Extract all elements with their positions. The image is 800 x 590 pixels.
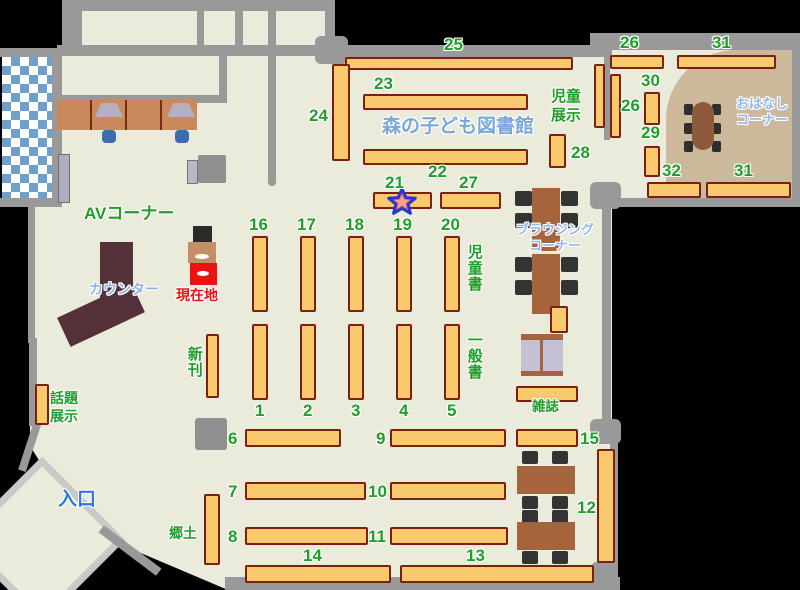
wall (28, 205, 35, 343)
wall (62, 0, 82, 50)
wall (0, 198, 54, 207)
local-history-label: 郷土 (169, 525, 197, 543)
shelf-number-30: 30 (641, 72, 660, 89)
shelf-number-23: 23 (374, 75, 393, 92)
browsing-table (532, 254, 560, 314)
gray-cabinet (198, 155, 226, 183)
chair (515, 280, 532, 295)
av-desk-divider (160, 100, 162, 130)
kiosk-top (193, 226, 212, 242)
shelf-number-32: 32 (662, 162, 681, 179)
back-room (62, 56, 170, 95)
shelf-26-horizontal (610, 55, 664, 69)
shelf-6 (245, 429, 341, 447)
kiosk-base-mark (197, 271, 209, 276)
shelf-27 (440, 192, 501, 209)
shelf-number-27: 27 (459, 174, 478, 191)
shelf-number-4: 4 (399, 402, 408, 419)
back-room (204, 11, 235, 45)
shelf-number-3: 3 (351, 402, 360, 419)
back-room (243, 11, 268, 45)
shelf-number-20: 20 (441, 216, 460, 233)
children-books-label: 児童書 (464, 244, 483, 292)
shelf-24 (332, 64, 350, 161)
shelf-number-24: 24 (309, 107, 328, 124)
shelf-number-22: 22 (428, 163, 447, 180)
shelf-number-29: 29 (641, 124, 660, 141)
back-room (177, 56, 219, 95)
shelf-number-11: 11 (368, 528, 386, 545)
shelf-12 (597, 449, 615, 563)
shelf-7 (245, 482, 366, 500)
shelf-3 (348, 324, 364, 400)
av-desk-divider (90, 100, 92, 130)
shelf-number-6: 6 (228, 430, 237, 447)
chair-blue (175, 130, 189, 143)
shelf-10 (390, 482, 506, 500)
wall (197, 8, 204, 48)
shelf-1 (252, 324, 268, 400)
magazine-rack (521, 334, 563, 376)
reading-table (517, 466, 575, 494)
shelf-23 (363, 94, 528, 110)
shelf-11 (390, 527, 508, 545)
wall (219, 53, 227, 103)
wall (607, 198, 800, 207)
topic-display-label: 話題 展示 (50, 390, 78, 425)
shelf-9 (390, 429, 506, 447)
shelf-19 (396, 236, 412, 312)
shelf-4 (396, 324, 412, 400)
wall (792, 33, 800, 204)
chair (522, 551, 538, 564)
shelf-number-28: 28 (571, 144, 590, 161)
shelf-number-17: 17 (297, 216, 316, 233)
chair (522, 496, 538, 509)
shelf-28 (549, 134, 566, 168)
shelf-13 (400, 565, 594, 583)
shelf-number-1: 1 (255, 402, 264, 419)
kiosk-screen (195, 254, 209, 259)
shelf-number-5: 5 (447, 402, 456, 419)
topic-display-shelf (35, 384, 49, 425)
kiosk-body (188, 242, 216, 263)
shelf-number-13: 13 (466, 547, 485, 564)
children-display-shelf (594, 64, 605, 128)
magazine-rack-divider (540, 340, 543, 371)
chair (552, 496, 568, 509)
shelf-16 (252, 236, 268, 312)
shelf-number-19: 19 (393, 216, 412, 233)
shelf-number-18: 18 (345, 216, 364, 233)
new-books-shelf (206, 334, 219, 398)
av-desk-divider (125, 100, 127, 130)
shelf-number-31b: 31 (734, 162, 753, 179)
shelf-number-26a: 26 (620, 34, 639, 51)
story-corner-table (692, 102, 714, 150)
shelf-30 (644, 92, 660, 125)
chair (561, 280, 578, 295)
new-books-label: 新刊 (184, 346, 203, 378)
reading-table (517, 522, 575, 550)
wall (57, 45, 335, 56)
shelf-number-31a: 31 (712, 34, 731, 51)
shelf-5 (444, 324, 460, 400)
shelf-number-21: 21 (385, 174, 404, 191)
shelf-17 (300, 236, 316, 312)
library-floor-map: 25 23 24 22 21 27 28 26 31 30 26 29 32 3… (0, 0, 800, 590)
chair (515, 257, 532, 272)
gray-panel (187, 160, 198, 184)
counter-label: カウンター (89, 281, 159, 299)
book-cart (58, 154, 70, 203)
shelf-number-10: 10 (368, 483, 387, 500)
shelf-number-16: 16 (249, 216, 268, 233)
shelf-number-2: 2 (303, 402, 312, 419)
shelf-number-25: 25 (444, 36, 463, 53)
local-history-shelf (204, 494, 220, 565)
entrance-label: 入口 (58, 488, 96, 512)
chair (561, 257, 578, 272)
wall (330, 45, 612, 57)
shelf-number-26b: 26 (621, 97, 640, 114)
shelf-number-9: 9 (376, 430, 385, 447)
kiosk-base (190, 263, 217, 285)
shelf-8 (245, 527, 368, 545)
shelf-18 (348, 236, 364, 312)
shelf-15 (516, 429, 578, 447)
shelf-number-14: 14 (303, 547, 322, 564)
shelf-31-bottom (706, 182, 791, 198)
magazines-label: 雑誌 (532, 399, 559, 416)
av-corner-label: AVコーナー (84, 203, 174, 224)
shelf-31-top (677, 55, 776, 69)
chair (561, 191, 578, 206)
pillar (195, 418, 227, 450)
shelf-number-12: 12 (577, 499, 596, 516)
shelf-number-8: 8 (228, 528, 237, 545)
chair (515, 191, 532, 206)
wall (235, 8, 243, 48)
shelf-32 (647, 182, 701, 198)
general-books-label: 一般書 (464, 332, 483, 380)
wall (268, 8, 276, 186)
back-room (82, 11, 197, 45)
shelf-2 (300, 324, 316, 400)
chair (552, 451, 568, 464)
chair (552, 551, 568, 564)
current-location-label: 現在地 (176, 287, 218, 305)
children-display-label: 児童 展示 (551, 88, 581, 126)
library-title: 森の子ども図書館 (382, 115, 534, 139)
browsing-small-shelf (550, 306, 568, 333)
shelf-14 (245, 565, 391, 583)
chair (522, 451, 538, 464)
shelf-number-15: 15 (580, 430, 599, 447)
checkered-area (2, 57, 52, 198)
shelf-25 (345, 57, 573, 70)
shelf-26-vertical (610, 74, 621, 138)
shelf-number-7: 7 (228, 483, 237, 500)
shelf-20 (444, 236, 460, 312)
browsing-corner-label: ブラウジング コーナー (505, 222, 605, 255)
story-corner-label: おはなし コーナー (736, 96, 788, 129)
shelf-29 (644, 146, 660, 177)
chair-blue (102, 130, 116, 143)
